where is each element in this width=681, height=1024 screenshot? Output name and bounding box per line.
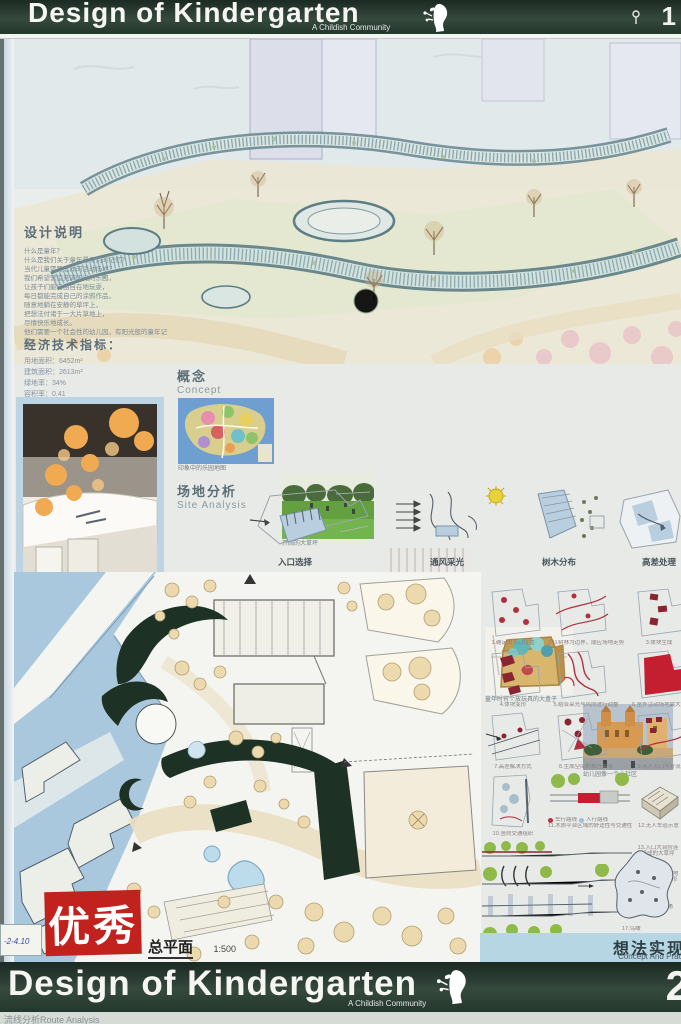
process-sketch <box>628 586 681 640</box>
legend-dot-pedestrian <box>579 818 584 823</box>
process-sketch <box>628 648 681 702</box>
process-cell: 8.生成空间的相互关系 <box>548 710 624 770</box>
process-cell: 3.体块生成 <box>628 586 681 646</box>
process-cell: 5.结合采光与风向进行调整 <box>548 648 624 708</box>
process-sketch <box>548 586 610 640</box>
process-cell: 10.竖向交通组织 <box>482 773 544 837</box>
process-sketch <box>548 648 610 702</box>
process-cell: 12.无人车道示意 <box>636 773 681 837</box>
process-sketch <box>548 710 610 764</box>
plan-label-row: 总平面 1:500 <box>148 936 236 957</box>
process-sketch <box>482 586 544 640</box>
process-caption: 9.无人入口与分流 <box>628 764 681 770</box>
concept-heading-en: Concept <box>177 385 221 396</box>
legend-dot-vehicle <box>548 818 553 823</box>
top-banner: Design of Kindergarten A Childish Commun… <box>0 0 681 34</box>
process-sketch <box>482 710 544 764</box>
design-notes-line: 把想法付诸于一大片草地上， <box>24 310 174 319</box>
process-sketch <box>636 773 681 823</box>
bottom-banner: Design of Kindergarten A Childish Commun… <box>0 962 681 1012</box>
photo-edge-light <box>4 34 14 1024</box>
award-stamp: 优秀 <box>44 890 142 956</box>
handwritten-tag-text: -2-4.10 <box>4 937 29 946</box>
poster-title: Design of Kindergarten <box>28 0 360 29</box>
process-cell: 2.以树林为边界，顺应场地走势 <box>548 586 624 646</box>
design-notes-line: 让孩子们能自由自在地玩耍， <box>24 283 174 292</box>
process-diagrams: 1.确定出入口位置 2.以树林为边界，顺应场地走势 3.体块生成 <box>482 586 681 934</box>
analysis-trees-diagram <box>520 486 612 556</box>
design-notes-line: 尽情快乐地成长。 <box>24 319 174 328</box>
bottom-edge-strip: 流线分析Route Analysis <box>0 1012 681 1024</box>
process-caption: 7.高差解决方式 <box>482 764 544 770</box>
analysis-label-entrance: 入口选择 <box>278 556 312 568</box>
process-sketch <box>548 773 632 817</box>
plan-label: 总平面 <box>148 939 193 959</box>
concept-section: 概念 Concept <box>177 366 221 396</box>
process-caption: 17.鸟瞰 <box>622 926 641 932</box>
process-cell: 1.确定出入口位置 <box>482 586 544 646</box>
design-notes: 设计说明 什么是童年？ 什么是我们关于童年最深刻的记忆？ 当代儿童需要怎样的活动… <box>24 222 174 346</box>
process-sketch <box>628 710 681 764</box>
dove-child-logo-icon <box>428 965 474 1007</box>
process-caption: 11.木质平台区域的舒适性与交通性相结合 <box>548 823 632 829</box>
process-cell: 7.高差解决方式 <box>482 710 544 770</box>
process-cell: 9.无人入口与分流 <box>628 710 681 770</box>
process-caption: 2.以树林为边界，顺应场地走势 <box>548 640 624 646</box>
site-analysis-heading-en: Site Analysis <box>177 500 247 511</box>
process-caption: 10.竖向交通组织 <box>482 831 544 837</box>
poster-board: Design of Kindergarten A Childish Commun… <box>0 0 681 1024</box>
concept-caption: 印象中的乐园地图 <box>178 466 274 473</box>
process-caption: 5.结合采光与风向进行调整 <box>548 702 624 708</box>
poster-title-bottom: Design of Kindergarten <box>8 964 417 1004</box>
page-number: 1 <box>662 1 676 32</box>
analysis-entrance-diagram <box>240 486 375 556</box>
indicator-item: 用地面积：6452m² <box>24 356 174 367</box>
process-cell: 4.体块变形 <box>482 648 544 708</box>
process-caption: 8.生成空间的相互关系 <box>548 764 624 770</box>
process-cell: 6.室外活动场地最大化 <box>628 648 681 708</box>
indicator-item: 建筑面积：2613m² <box>24 367 174 378</box>
award-stamp-text: 优秀 <box>47 891 139 954</box>
design-notes-line: 什么是童年？ <box>24 247 174 256</box>
design-notes-line: 我们希望营造充满阳光的乐园， <box>24 274 174 283</box>
poster-subtitle: A Childish Community <box>312 23 390 32</box>
indicator-item: 绿地率：34% <box>24 378 174 389</box>
dove-child-logo-icon <box>416 1 454 33</box>
small-glyph-icon <box>630 8 642 26</box>
concept-heading-cn: 概念 <box>177 366 221 385</box>
analysis-slope-diagram <box>618 486 681 556</box>
process-cell: 车行路线 人行路线 11.木质平台区域的舒适性与交通性相结合 <box>548 773 632 837</box>
design-notes-line: 什么是我们关于童年最深刻的记忆？ <box>24 256 174 265</box>
process-sketch <box>482 648 544 702</box>
process-caption: 3.体块生成 <box>628 640 681 646</box>
site-analysis-section: 场地分析 Site Analysis <box>177 481 247 511</box>
poster-subtitle-bottom: A Childish Community <box>348 999 426 1008</box>
tech-indicators: 经济技术指标： 用地面积：6452m² 建筑面积：2613m² 绿地率：34% … <box>24 336 174 400</box>
design-notes-line: 每日都能完成自己的涂鸦作品， <box>24 292 174 301</box>
analysis-label-slope: 高差处理 <box>642 556 676 568</box>
bottom-section-bar: 想法实现 Concept And Practice <box>480 933 681 962</box>
bottom-edge-text: 流线分析Route Analysis <box>4 1013 100 1024</box>
physical-model-photo <box>16 397 164 593</box>
handwritten-tag: -2-4.10 <box>0 924 42 956</box>
analysis-ventilation-diagram <box>392 486 512 556</box>
design-notes-line: 随意地躺在安静的草坪上， <box>24 301 174 310</box>
design-notes-line: 当代儿童需要怎样的活动场地？ <box>24 265 174 274</box>
playground-map-photo <box>178 398 274 464</box>
indicators-heading: 经济技术指标： <box>24 336 174 353</box>
analysis-label-ventilation: 通风采光 <box>430 556 464 568</box>
bottom-bar-en: Concept And Practice <box>618 952 681 961</box>
process-sketch <box>482 773 544 831</box>
site-analysis-heading-cn: 场地分析 <box>177 481 247 500</box>
process-caption: 6.室外活动场地最大化 <box>628 702 681 708</box>
concept-thumb-map: 印象中的乐园地图 <box>178 398 274 473</box>
aerial-plan-thumb <box>608 848 680 926</box>
plan-scale: 1:500 <box>213 944 236 954</box>
analysis-label-trees: 树木分布 <box>542 556 576 568</box>
process-caption: 1.确定出入口位置 <box>482 640 544 646</box>
process-caption: 12.无人车道示意 <box>636 823 681 829</box>
design-notes-heading: 设计说明 <box>24 222 174 241</box>
process-caption: 4.体块变形 <box>482 702 544 708</box>
page-number-bottom: 2 <box>666 962 681 1010</box>
